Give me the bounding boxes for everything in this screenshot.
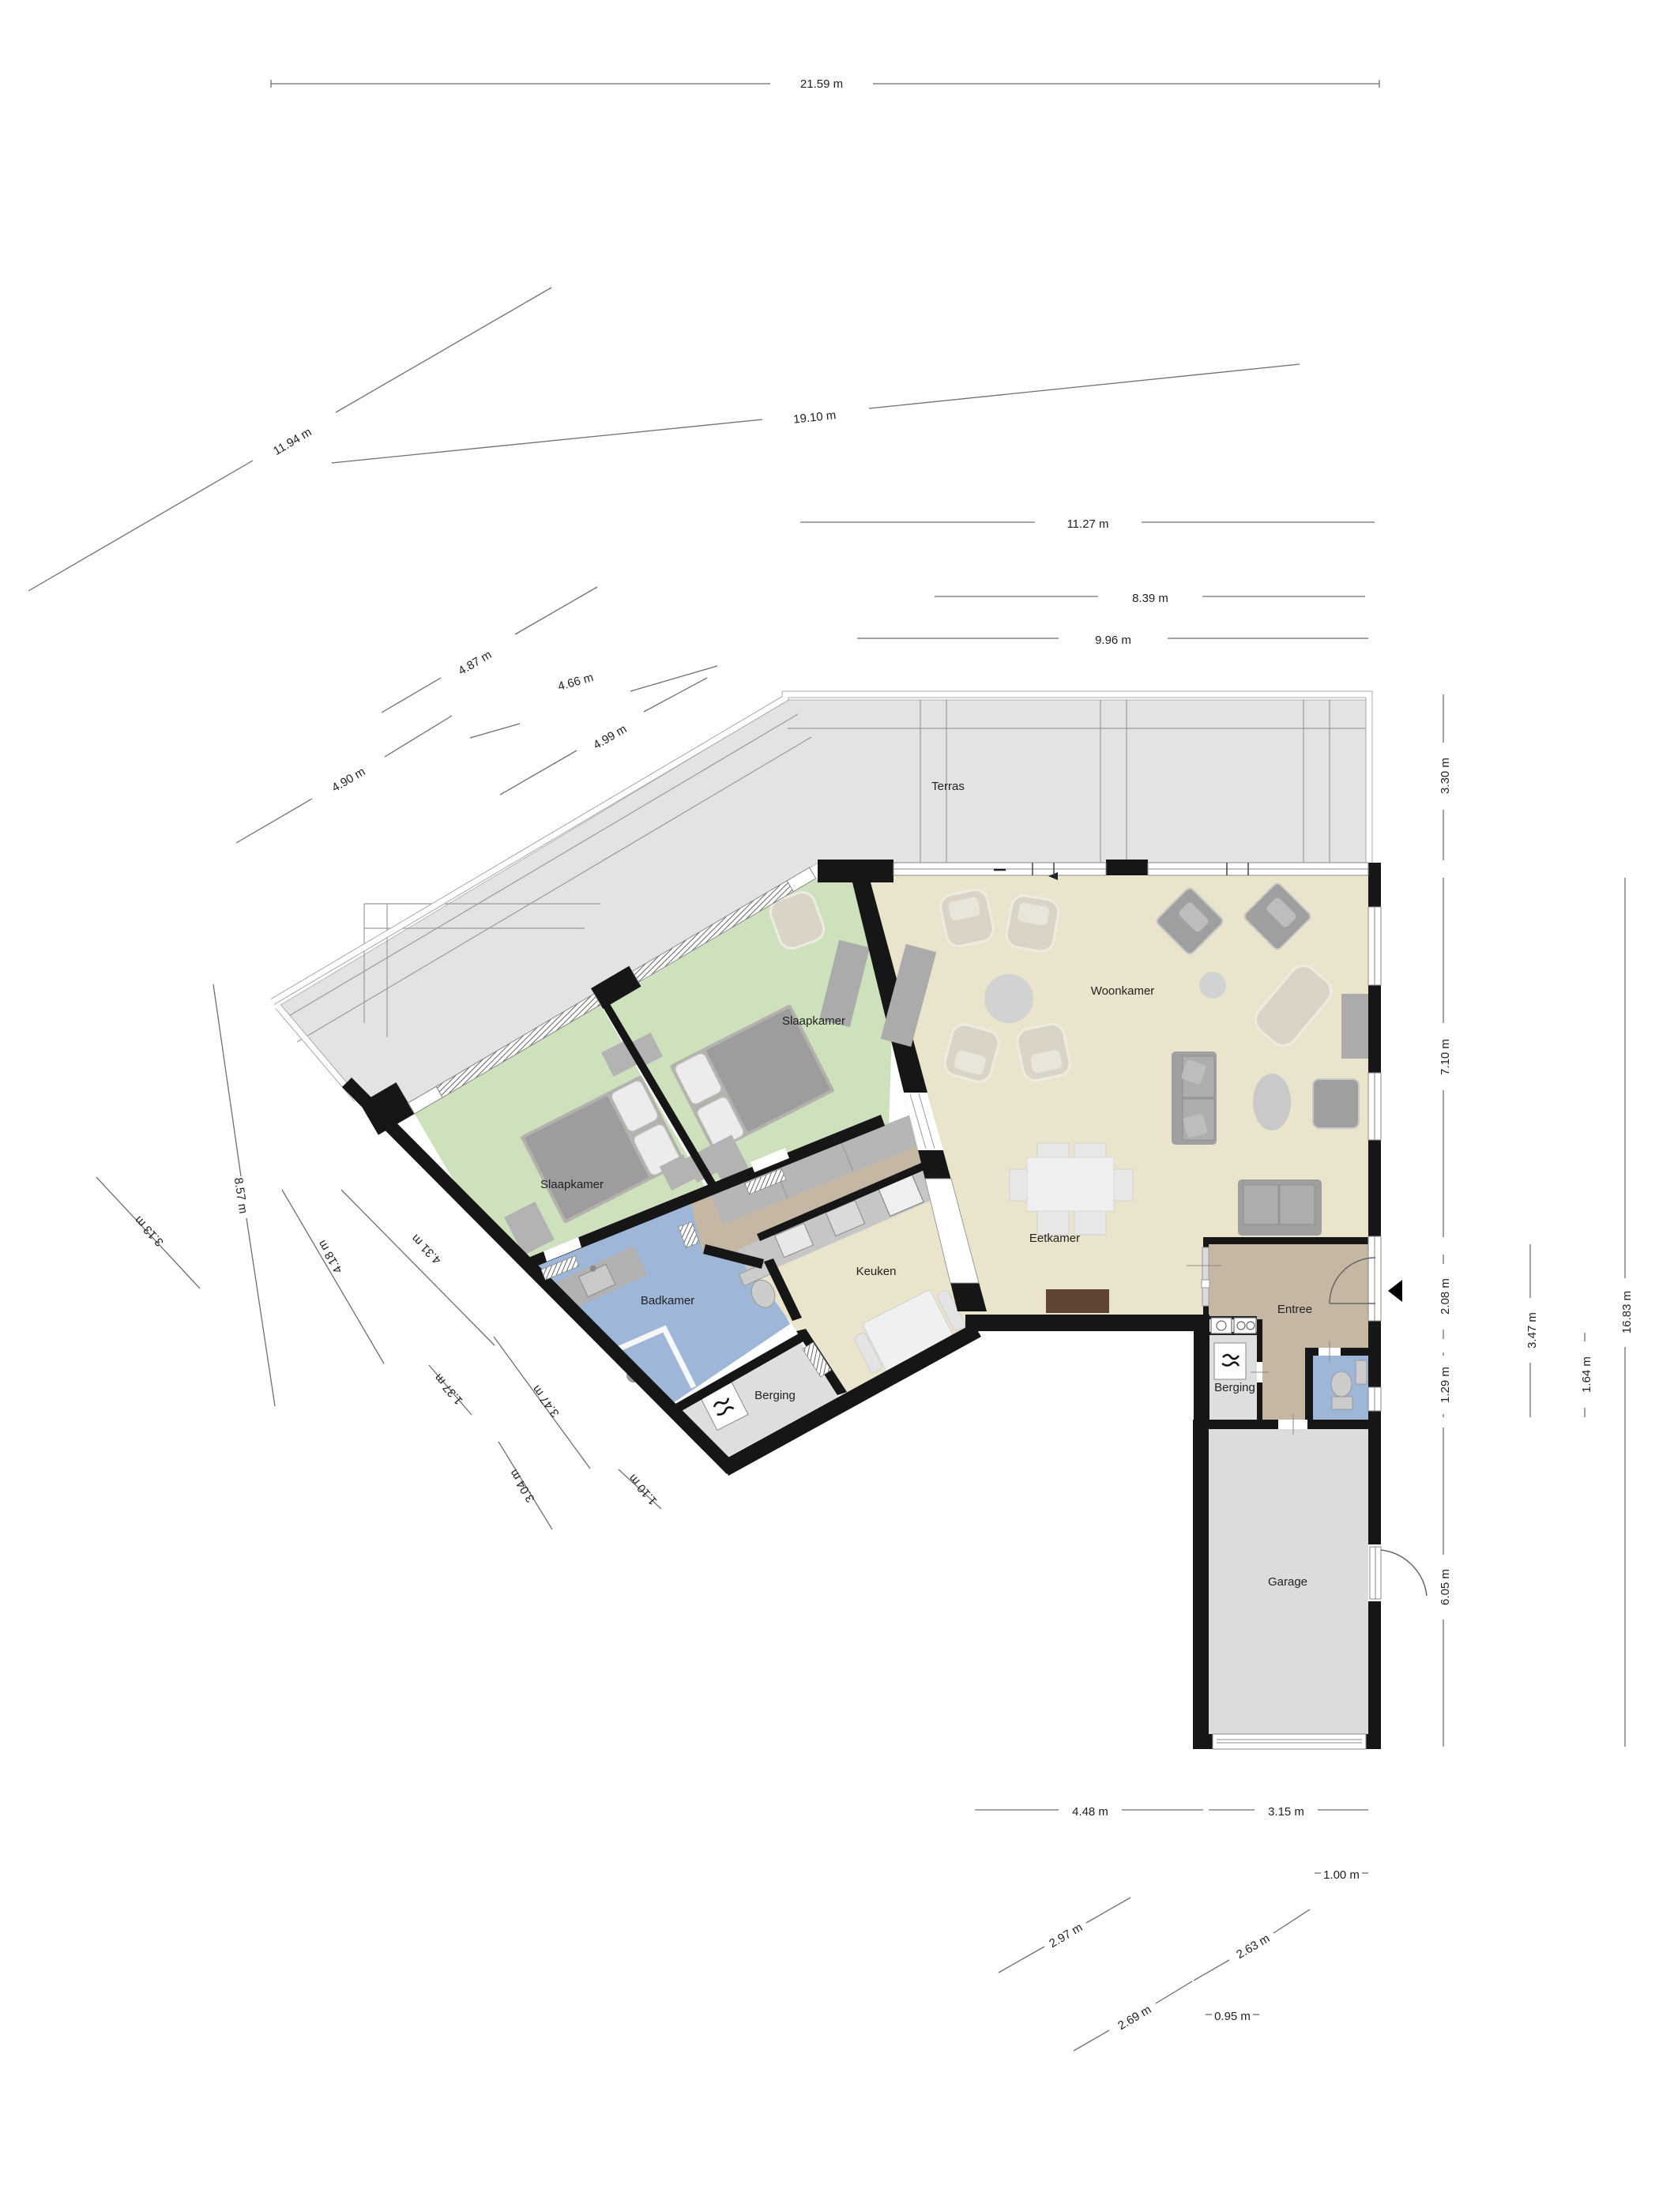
svg-text:4.48 m: 4.48 m bbox=[1072, 1805, 1108, 1819]
svg-text:Berging: Berging bbox=[1214, 1381, 1255, 1394]
svg-text:3.30 m: 3.30 m bbox=[1439, 758, 1452, 794]
svg-text:1.64 m: 1.64 m bbox=[1580, 1356, 1593, 1393]
svg-text:Badkamer: Badkamer bbox=[641, 1294, 694, 1307]
svg-text:Woonkamer: Woonkamer bbox=[1091, 984, 1155, 998]
svg-text:Slaapkamer: Slaapkamer bbox=[540, 1178, 604, 1191]
svg-text:11.27 m: 11.27 m bbox=[1066, 517, 1108, 531]
svg-text:Keuken: Keuken bbox=[856, 1265, 897, 1278]
svg-text:2.08 m: 2.08 m bbox=[1439, 1278, 1452, 1315]
svg-text:1.00 m: 1.00 m bbox=[1323, 1868, 1360, 1882]
svg-text:Slaapkamer: Slaapkamer bbox=[782, 1014, 845, 1028]
svg-text:Terras: Terras bbox=[931, 780, 965, 793]
svg-text:3.47 m: 3.47 m bbox=[1525, 1312, 1539, 1349]
svg-text:9.96 m: 9.96 m bbox=[1095, 634, 1131, 647]
svg-text:6.05 m: 6.05 m bbox=[1439, 1569, 1452, 1605]
svg-text:3.15 m: 3.15 m bbox=[1268, 1805, 1304, 1819]
svg-text:16.83 m: 16.83 m bbox=[1620, 1291, 1634, 1334]
svg-text:0.95 m: 0.95 m bbox=[1214, 2010, 1251, 2023]
svg-text:Entree: Entree bbox=[1277, 1303, 1312, 1316]
svg-text:8.39 m: 8.39 m bbox=[1132, 592, 1168, 605]
svg-text:Eetkamer: Eetkamer bbox=[1029, 1232, 1080, 1245]
svg-text:1.29 m: 1.29 m bbox=[1439, 1367, 1452, 1403]
svg-text:21.59 m: 21.59 m bbox=[800, 77, 843, 91]
svg-text:Garage: Garage bbox=[1268, 1575, 1307, 1589]
svg-text:Berging: Berging bbox=[754, 1389, 796, 1402]
svg-text:7.10 m: 7.10 m bbox=[1439, 1039, 1452, 1075]
